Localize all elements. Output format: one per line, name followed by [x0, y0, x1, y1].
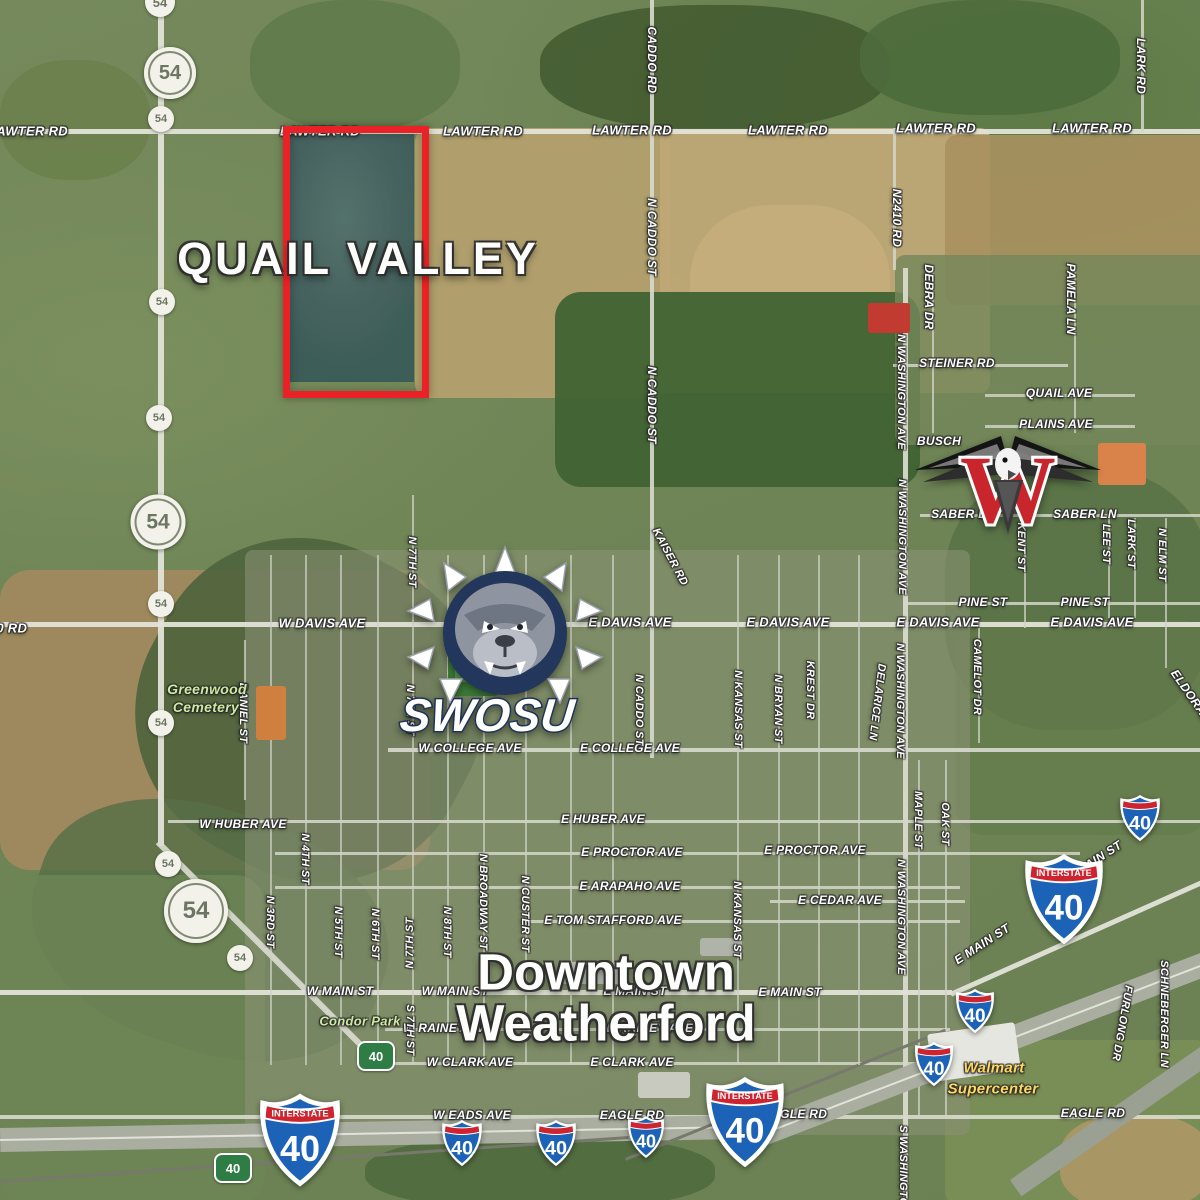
street-label-n-bryan-st: N BRYAN ST: [772, 674, 784, 743]
route-54-number: 54: [162, 858, 174, 870]
interstate-40-marker: 40: [442, 1120, 482, 1166]
street-label-n-8th-st: N 8TH ST: [441, 906, 453, 957]
route-54-number: 54: [183, 897, 210, 925]
street-label-e-clark-ave: E CLARK AVE: [590, 1055, 673, 1069]
street-label-pamela-ln: PAMELA LN: [1064, 263, 1078, 334]
route-54-marker: 54: [148, 710, 174, 736]
route-54-number: 54: [153, 0, 167, 10]
street-label-n2410-rd: N2410 RD: [890, 189, 904, 247]
street-label-n-elm-st: N ELM ST: [1156, 528, 1168, 582]
route-54-marker: 54: [148, 591, 174, 617]
interstate-number: 40: [280, 1128, 320, 1169]
route-54-marker: 54: [131, 495, 186, 550]
street-label-w-main-st: W MAIN ST: [307, 984, 374, 998]
street-label-n-washington-ave: N WASHINGTON AVE: [896, 479, 908, 595]
street-label-w-clark-ave: W CLARK AVE: [427, 1055, 514, 1069]
route-54-number: 54: [155, 717, 167, 729]
route-54-marker: 54: [155, 851, 181, 877]
street-label-maple-st: MAPLE ST: [912, 791, 924, 849]
downtown-title-line2: Weatherford: [456, 994, 755, 1053]
place-label-supercenter: Supercenter: [948, 1081, 1039, 1098]
street-label-schneberger-ln: SCHNEBERGER LN: [1158, 960, 1170, 1068]
street-label-n-broadway-st: N BROADWAY ST: [477, 854, 489, 950]
interstate-40-marker: 40: [536, 1120, 576, 1166]
interstate-number: 40: [545, 1138, 567, 1160]
street-label-e-huber-ave: E HUBER AVE: [561, 812, 645, 826]
place-label-greenwood: Greenwood: [167, 681, 247, 697]
place-label-cemetery: Cemetery: [173, 699, 239, 715]
interstate-shield-icon: 40: [628, 1116, 664, 1158]
street-label-pine-st: PINE ST: [959, 595, 1008, 609]
route-54-number: 54: [153, 412, 165, 424]
route-54-marker: 54: [144, 47, 196, 99]
street-label-n-6th-st: N 6TH ST: [369, 908, 381, 959]
street-label-e-arapaho-ave: E ARAPAHO AVE: [579, 879, 680, 893]
street-label-lark-st: LARK ST: [1125, 519, 1137, 569]
street-label-e-davis-ave: E DAVIS AVE: [896, 615, 979, 630]
street-label-n-7th-st: N 7TH ST: [404, 917, 416, 968]
street-label-oak-st: OAK ST: [939, 802, 951, 845]
street-label-n-caddo-st: N CADDO ST: [633, 674, 645, 745]
interstate-number: 40: [1129, 813, 1151, 835]
green-40-marker: 40: [214, 1153, 252, 1183]
street-label-n-caddo-st: N CADDO ST: [645, 198, 659, 276]
route-54-marker: 54: [145, 0, 175, 17]
interstate-number: 40: [451, 1138, 473, 1160]
street-label-quail-ave: QUAIL AVE: [1026, 386, 1093, 400]
interstate-shield-icon: 40: [536, 1120, 576, 1166]
street-label-lawter-rd: LAWTER RD: [748, 123, 828, 138]
interstate-shield-icon: INTERSTATE40: [1025, 854, 1103, 944]
interstate-40-marker: 40: [1120, 795, 1160, 841]
route-54-marker: 54: [148, 106, 174, 132]
street-label-pine-st: PINE ST: [1061, 595, 1110, 609]
interstate-40-marker: 40: [628, 1116, 664, 1158]
interstate-number: 40: [636, 1132, 656, 1152]
street-label-e-main-st: E MAIN ST: [758, 985, 821, 999]
street-label-20-rd: 20 RD: [0, 621, 27, 636]
interstate-banner-text: INTERSTATE: [271, 1108, 328, 1118]
route-54-marker: 54: [149, 289, 175, 315]
swosu-bulldog-logo: SWOSU: [380, 545, 630, 755]
interstate-banner-text: INTERSTATE: [1036, 868, 1091, 878]
street-label-caddo-rd: CADDO RD: [645, 26, 659, 93]
route-54-number: 54: [146, 510, 169, 534]
street-label-s-washington: S WASHINGTON: [897, 1125, 909, 1200]
green-40-number: 40: [369, 1049, 383, 1064]
street-label-n-caddo-st: N CADDO ST: [645, 366, 659, 444]
route-54-marker: 54: [227, 945, 253, 971]
interstate-shield-icon: 40: [1120, 795, 1160, 841]
route-54-number: 54: [234, 952, 246, 964]
interstate-number: 40: [964, 1006, 985, 1027]
street-label-w-davis-ave: W DAVIS AVE: [279, 616, 366, 631]
street-label-lawter-rd: LAWTER RD: [1052, 121, 1132, 136]
street-label-eagle-rd: EAGLE RD: [1061, 1106, 1125, 1120]
street-label-n-5th-st: N 5TH ST: [332, 906, 344, 957]
street-label-lawter-rd: LAWTER RD: [443, 124, 523, 139]
street-label-camelot-dr: CAMELOT DR: [971, 639, 983, 715]
place-label-walmart: Walmart: [963, 1060, 1024, 1077]
street-label-e-proctor-ave: E PROCTOR AVE: [764, 843, 866, 857]
street-label-e-davis-ave: E DAVIS AVE: [746, 615, 829, 630]
street-label-w-huber-ave: W HUBER AVE: [199, 817, 286, 831]
interstate-40-shield: INTERSTATE40: [1025, 854, 1103, 944]
interstate-number: 40: [726, 1111, 765, 1150]
street-label-e-davis-ave: E DAVIS AVE: [1050, 615, 1133, 630]
street-label-n-3rd-st: N 3RD ST: [264, 896, 276, 949]
swosu-wordmark: SWOSU: [398, 689, 579, 741]
street-label-lawter-rd: LAWTER RD: [896, 121, 976, 136]
street-label-n-4th-st: N 4TH ST: [299, 833, 311, 884]
interstate-40-marker: 40: [915, 1042, 953, 1086]
route-54-number: 54: [155, 113, 167, 125]
interstate-shield-icon: 40: [915, 1042, 953, 1086]
street-label-e-tom-stafford-ave: E TOM STAFFORD AVE: [544, 913, 682, 927]
street-label-e-proctor-ave: E PROCTOR AVE: [581, 845, 683, 859]
interstate-40-shield: INTERSTATE40: [260, 1094, 340, 1187]
place-label-condor-park: Condor Park: [319, 1014, 400, 1029]
interstate-shield-icon: 40: [442, 1120, 482, 1166]
weatherford-eagle-logo: W: [913, 422, 1103, 552]
street-label-n-washington-ave: N WASHINGTON AVE: [895, 334, 907, 450]
route-54-marker: 54: [164, 879, 228, 943]
street-label-e-cedar-ave: E CEDAR AVE: [798, 893, 882, 907]
street-label-debra-dr: DEBRA DR: [922, 264, 936, 329]
interstate-number: 40: [1045, 888, 1084, 927]
street-label-s-7th-st: S 7TH ST: [404, 1005, 416, 1056]
street-label-n-washington-ave: N WASHINGTON AVE: [894, 643, 906, 759]
interstate-40-shield: INTERSTATE40: [706, 1077, 784, 1167]
street-label-n-washington-ave: N WASHINGTON AVE: [895, 859, 907, 975]
street-label-lawter-rd: LAWTER RD: [0, 124, 68, 139]
quail-valley-title: QUAIL VALLEY: [177, 233, 539, 285]
street-label-steiner-rd: STEINER RD: [919, 356, 995, 370]
street-label-lark-rd: LARK RD: [1134, 38, 1148, 94]
route-54-number: 54: [156, 296, 168, 308]
satellite-map: QUAIL VALLEY Downtown Weatherford W: [0, 0, 1200, 1200]
interstate-40-marker: 40: [956, 989, 994, 1033]
interstate-banner-text: INTERSTATE: [717, 1091, 772, 1101]
street-label-lawter-rd: LAWTER RD: [592, 123, 672, 138]
interstate-shield-icon: INTERSTATE40: [260, 1094, 340, 1187]
interstate-number: 40: [923, 1059, 944, 1080]
route-54-number: 54: [155, 598, 167, 610]
interstate-shield-icon: INTERSTATE40: [706, 1077, 784, 1167]
green-40-number: 40: [226, 1161, 240, 1176]
street-label-krest-dr: KREST DR: [804, 661, 816, 720]
street-label-n-custer-st: N CUSTER ST: [519, 876, 531, 953]
route-54-number: 54: [159, 62, 181, 85]
street-label-n-kansas-st: N KANSAS ST: [732, 670, 744, 748]
green-40-marker: 40: [357, 1041, 395, 1071]
interstate-shield-icon: 40: [956, 989, 994, 1033]
route-54-marker: 54: [146, 405, 172, 431]
